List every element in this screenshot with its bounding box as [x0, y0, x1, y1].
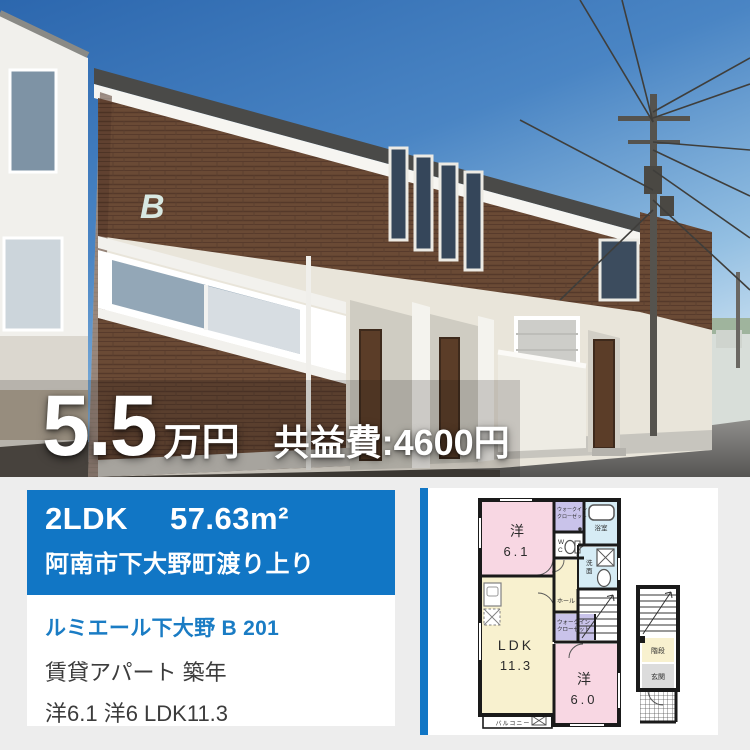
property-name-link[interactable]: ルミエール下大野 B 201	[45, 612, 383, 642]
room-label-bedroom2: 洋	[577, 671, 591, 687]
wic1-label-line1: ウォークイン	[557, 506, 587, 513]
floor-area: 57.63m²	[170, 501, 289, 537]
room-size-bedroom1: 6.1	[503, 544, 530, 559]
price-overlay: 5.5 万円 共益費:4600円	[42, 383, 510, 469]
hall-label: ホール	[557, 598, 575, 605]
wc-label-line1: W	[558, 539, 565, 546]
floorplan-card: 洋 6.1 ウォークイン クローゼット W C 浴室 洗 面 ホール ウォークイ…	[420, 488, 718, 735]
room-size-bedroom2: 6.0	[570, 692, 597, 707]
balcony-label: バルコニー	[496, 721, 531, 728]
address: 阿南市下大野町渡り上り	[45, 544, 395, 579]
property-photo: B	[0, 0, 750, 477]
wash-label-line2: 面	[586, 567, 593, 575]
stairs-label: 階段	[651, 646, 665, 655]
price-amount: 5.5	[42, 383, 156, 469]
listing-page: B	[0, 0, 750, 750]
floorplan-image: 洋 6.1 ウォークイン クローゼット W C 浴室 洗 面 ホール ウォークイ…	[420, 488, 718, 735]
summary-header: 2LDK 57.63m² 阿南市下大野町渡り上り	[27, 490, 395, 595]
wic1-label-line2: クローゼット	[557, 513, 587, 520]
bath-label: 浴室	[595, 523, 609, 532]
layout-type: 2LDK	[45, 501, 128, 537]
room-breakdown: 洋6.1 洋6 LDK11.3	[45, 696, 383, 728]
common-fee: 共益費:4600円	[274, 414, 510, 466]
building-emblem: B	[140, 188, 165, 226]
entrance-label: 玄関	[651, 672, 665, 681]
summary-card[interactable]: 2LDK 57.63m² 阿南市下大野町渡り上り ルミエール下大野 B 201 …	[27, 490, 395, 726]
wic2-label-line1: ウォークイン	[557, 618, 591, 626]
property-type: 賃貸アパート 築年	[45, 655, 383, 687]
wic2-label-line2: クローゼット	[557, 625, 590, 633]
room-label-bedroom1: 洋	[510, 523, 524, 539]
wc-label-line2: C	[558, 547, 563, 554]
summary-body: ルミエール下大野 B 201 賃貸アパート 築年 洋6.1 洋6 LDK11.3	[27, 595, 395, 728]
ldk-label: LDK	[498, 637, 534, 653]
price-unit: 万円	[164, 411, 240, 466]
ldk-size: 11.3	[500, 658, 532, 673]
wash-label-line1: 洗	[586, 558, 593, 567]
